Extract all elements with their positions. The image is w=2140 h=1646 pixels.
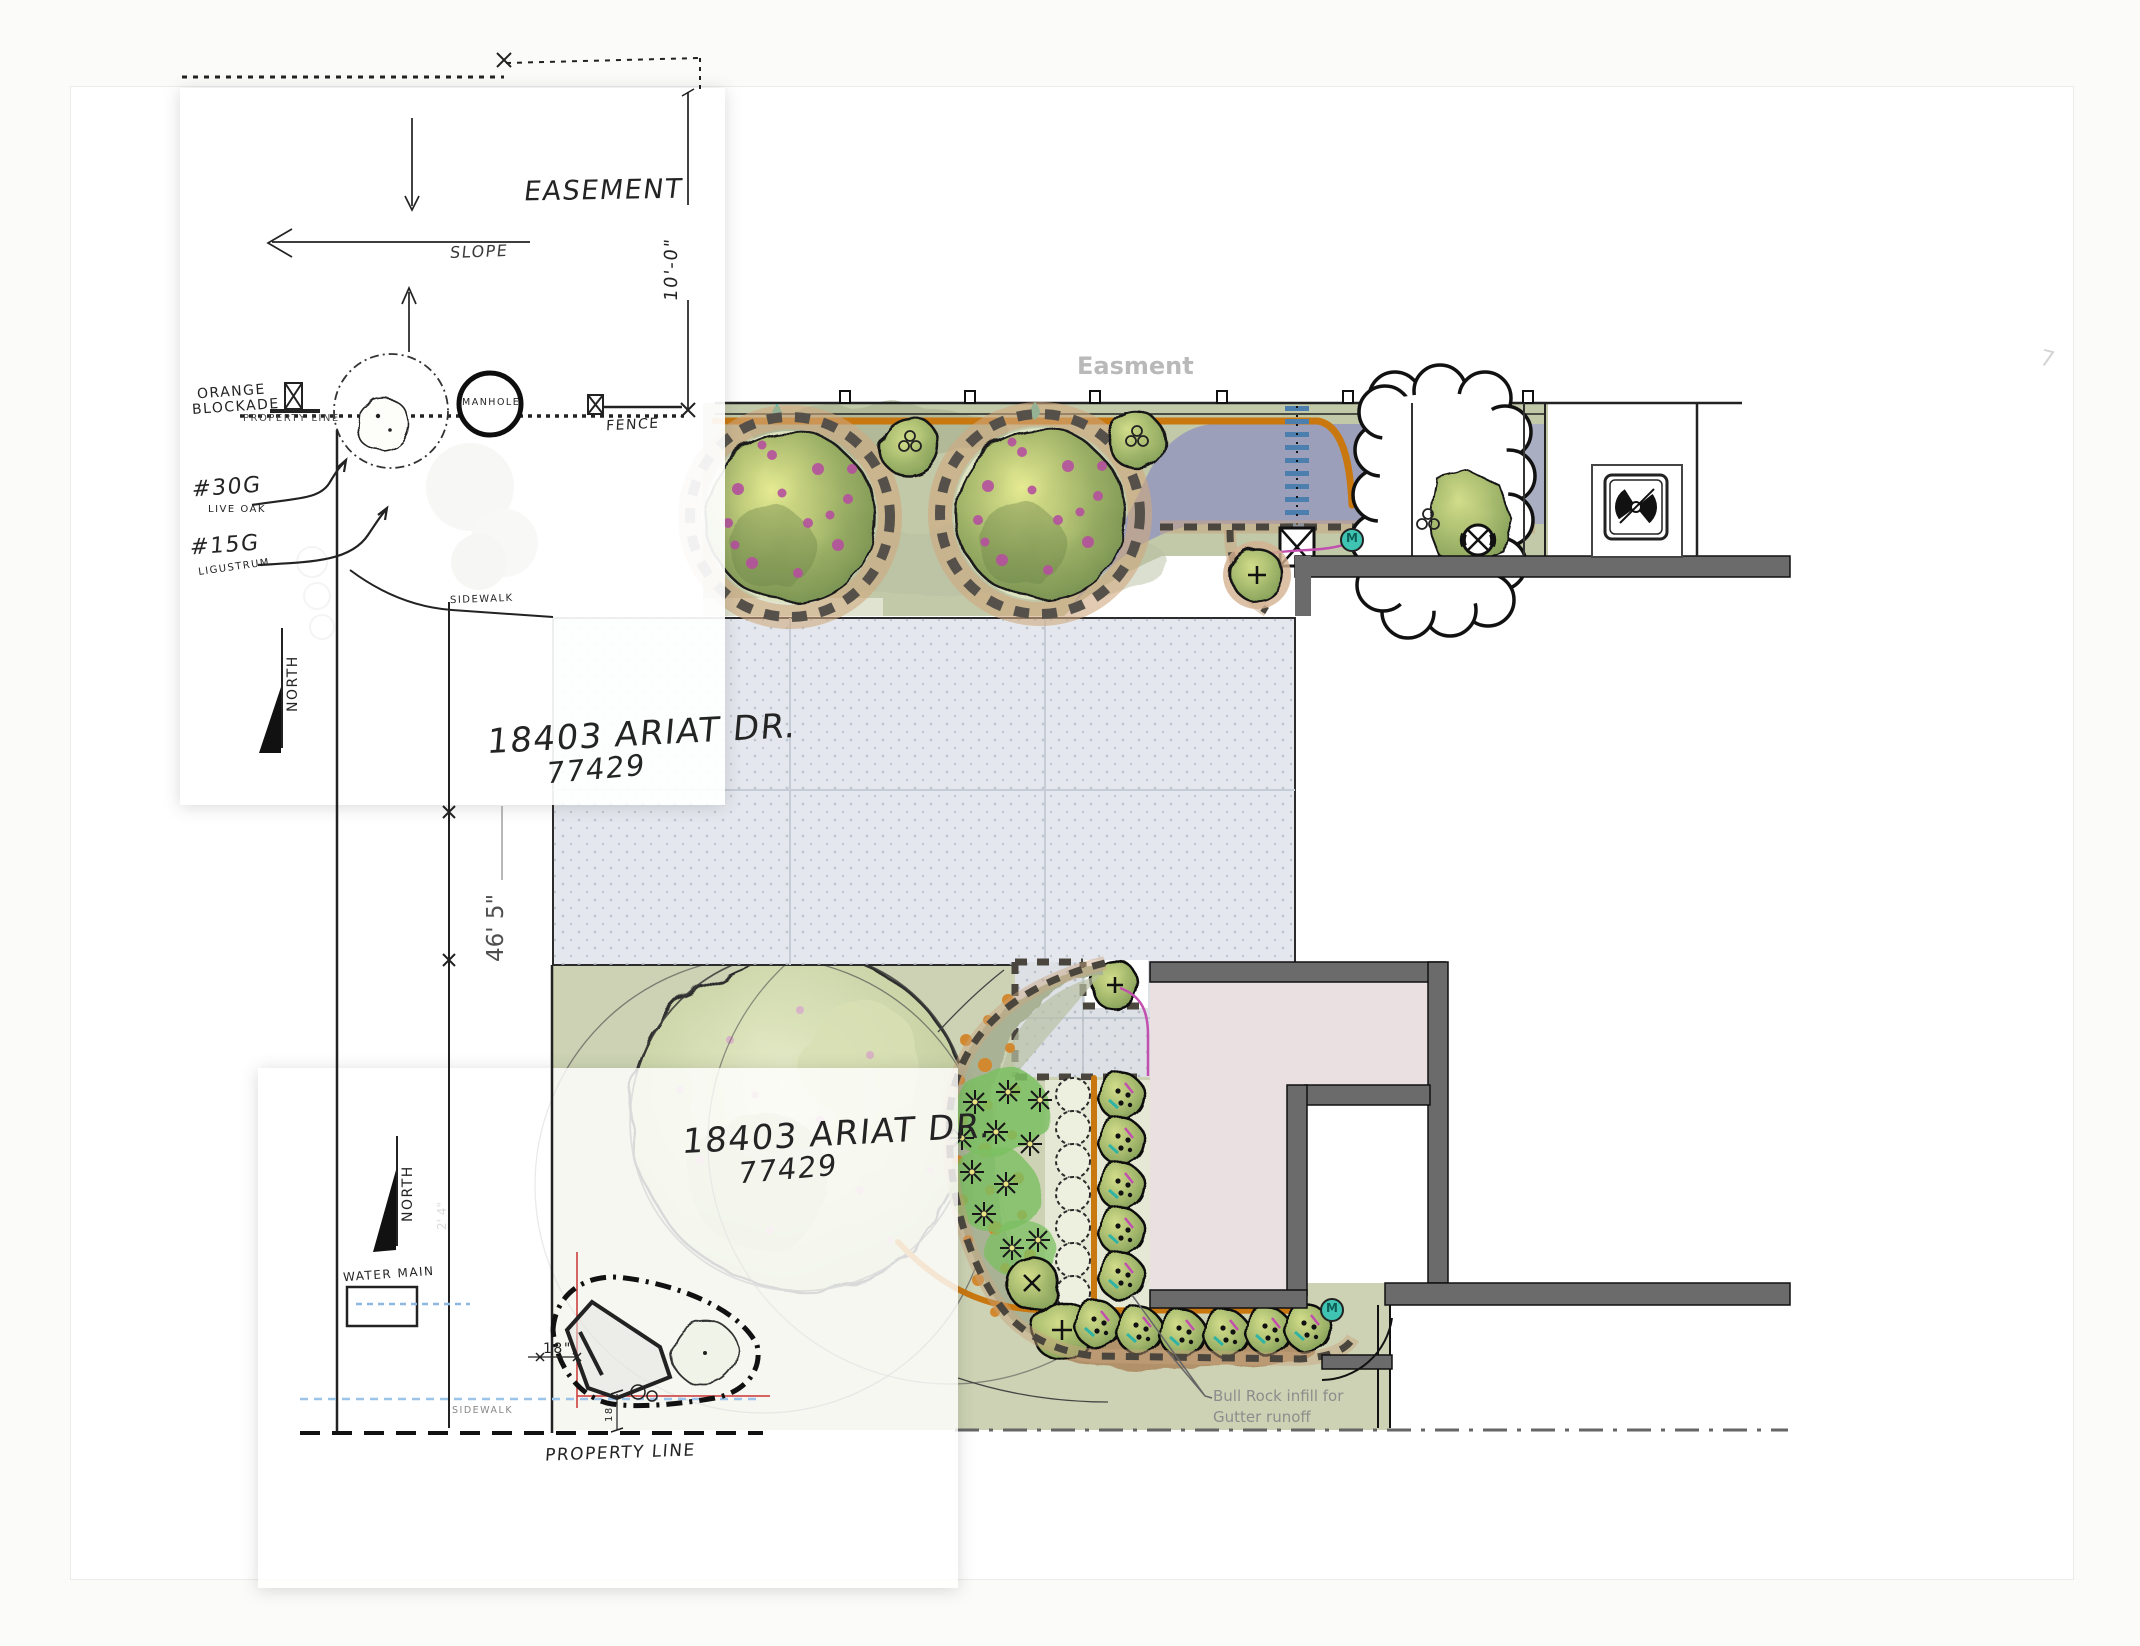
plant-tag-15g: #15G: [189, 531, 260, 560]
dim-18-vert-label: 18: [604, 1406, 615, 1422]
meter-letter-top: M: [1346, 532, 1358, 545]
sidewalk-label-top: SIDEWALK: [450, 593, 514, 606]
slope-label: SLOPE: [449, 242, 509, 262]
property-line-small-label: PROPERTY LINE: [243, 413, 340, 424]
dim-18-label: 18": [543, 1342, 572, 1357]
easement-dimension: 10'-0": [662, 237, 682, 302]
bull-rock-note-line1: Bull Rock infill for: [1213, 1387, 1343, 1405]
bull-rock-note: Bull Rock infill forGutter runoff: [1213, 1386, 1343, 1428]
north-label-top: NORTH: [286, 655, 301, 712]
north-label-bottom: NORTH: [401, 1165, 416, 1222]
plant-tag-30g: #30G: [191, 473, 262, 502]
bull-rock-note-line2: Gutter runoff: [1213, 1408, 1311, 1426]
meter-letter-bottom: M: [1326, 1302, 1338, 1315]
easement-label: EASEMENT: [522, 175, 684, 208]
easment-digital-label: Easment: [1077, 353, 1194, 379]
sidewalk-dimension-faint: 2' 4": [436, 1202, 449, 1230]
sidewalk-label-bottom: SIDEWALK: [452, 1406, 513, 1416]
plant-tag-30g-name: LIVE OAK: [208, 504, 266, 515]
fence-label: FENCE: [606, 417, 660, 435]
manhole-label: MANHOLE: [462, 398, 520, 408]
driveway-dimension: 46' 5": [484, 894, 509, 962]
landscape-plan-page: EASEMENT SLOPE 10'-0" ORANGE BLOCKADE PR…: [0, 0, 2140, 1646]
